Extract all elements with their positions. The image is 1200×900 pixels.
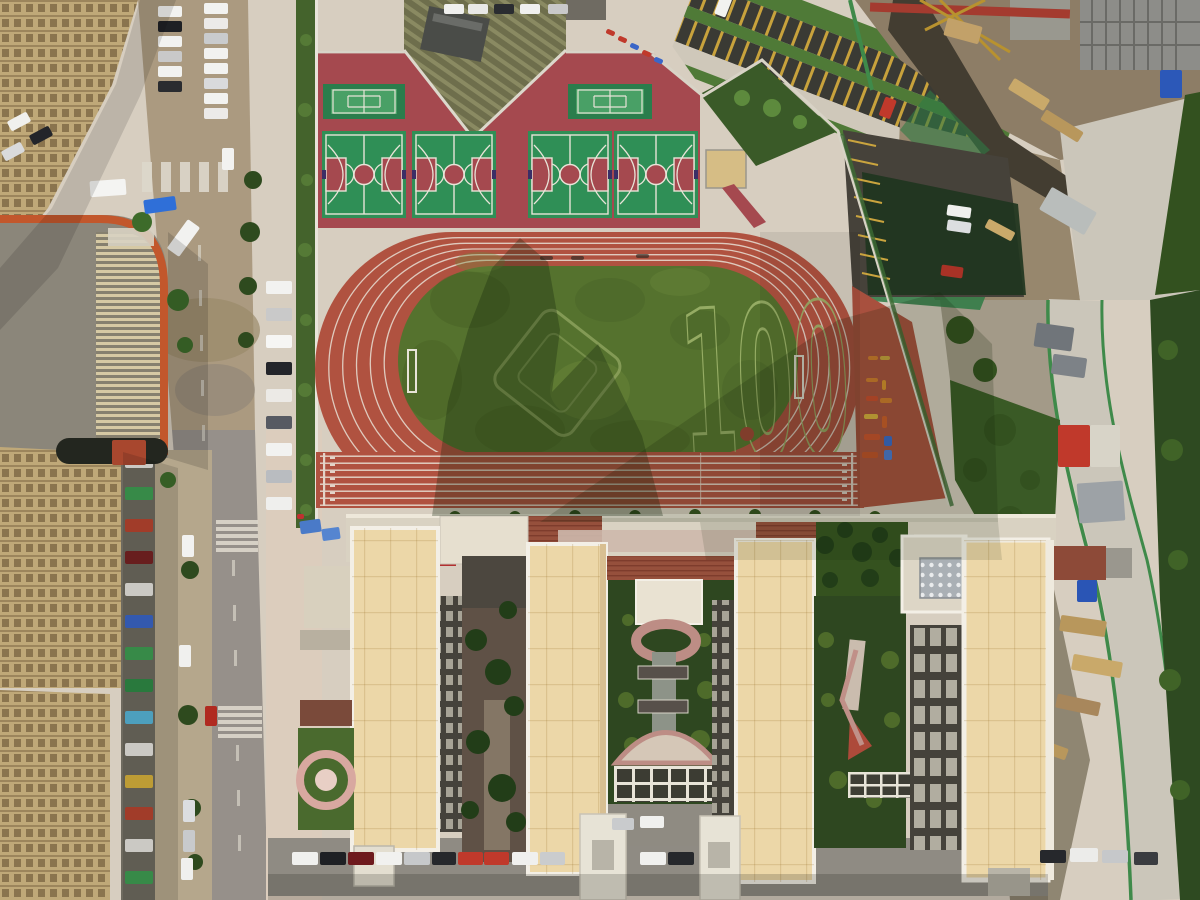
material-pile	[1077, 580, 1097, 602]
parked-car	[182, 535, 194, 557]
parked-car	[204, 78, 228, 89]
parked-car	[640, 816, 664, 828]
material-pile	[1058, 425, 1090, 467]
apartment-building-sw2	[0, 690, 110, 900]
parked-car	[494, 4, 514, 14]
market-shadow	[168, 232, 208, 470]
wall-top-right	[566, 51, 654, 53]
canopy-tent	[321, 527, 340, 541]
parked-car	[640, 852, 666, 865]
parked-car	[468, 4, 488, 14]
parked-car	[204, 18, 228, 29]
classroom-building-east	[902, 536, 1054, 896]
parked-car	[204, 108, 228, 119]
boundary-hedge-west	[296, 0, 316, 528]
basketball-court	[322, 131, 406, 218]
parked-car	[1134, 852, 1158, 865]
annex-roof-1	[304, 566, 350, 628]
south-shadow-band	[268, 874, 1048, 900]
white-pergola-grid	[614, 766, 726, 802]
parked-car	[548, 4, 568, 14]
school-buildings	[268, 514, 1132, 900]
parked-car	[1040, 850, 1066, 863]
tile-roof-3	[1048, 546, 1106, 580]
parked-car	[266, 335, 292, 348]
parked-car	[266, 416, 292, 429]
east-parapet	[1046, 540, 1054, 880]
parked-car	[222, 148, 234, 170]
parked-car	[158, 81, 182, 92]
parked-car	[183, 830, 195, 852]
parked-car	[1070, 848, 1098, 862]
basketball-court	[412, 131, 496, 218]
sw-garden	[298, 728, 354, 830]
parked-car	[612, 818, 634, 830]
parked-car	[204, 3, 228, 14]
palm-tree	[734, 90, 750, 106]
parked-car	[266, 497, 292, 510]
parked-car	[158, 51, 182, 62]
parked-car	[520, 4, 540, 14]
parked-car	[458, 852, 483, 865]
parked-car	[266, 308, 292, 321]
long-jump-pit	[706, 150, 746, 188]
parked-car	[484, 852, 509, 865]
material-pile	[1077, 480, 1126, 523]
parked-car	[204, 48, 228, 59]
parked-car	[204, 93, 228, 104]
parked-car	[348, 852, 374, 865]
skylight-grid	[920, 558, 964, 598]
pergola-1	[638, 666, 688, 679]
hurdle	[571, 256, 584, 260]
basketball-court	[614, 131, 698, 218]
parked-car	[266, 281, 292, 294]
parked-car	[404, 852, 430, 865]
parked-car	[266, 470, 292, 483]
pergola-2	[638, 700, 688, 713]
parked-car	[292, 852, 318, 865]
cars-top-lot	[444, 4, 568, 14]
parked-car	[540, 852, 565, 865]
parked-car	[432, 852, 456, 865]
parked-car	[1102, 850, 1128, 863]
parked-car	[376, 852, 402, 865]
parked-car	[183, 800, 195, 822]
parked-car	[266, 389, 292, 402]
shadow-spill	[700, 522, 1002, 560]
parked-car	[266, 443, 292, 456]
parked-car	[266, 362, 292, 375]
parked-car	[181, 858, 193, 880]
wing-annex	[1106, 548, 1132, 578]
parked-car	[444, 4, 464, 14]
parked-car	[320, 852, 346, 865]
annex-roof-2	[300, 630, 350, 650]
pergola-grid-east	[848, 772, 918, 798]
parked-car	[204, 63, 228, 74]
boundary-wall-west	[315, 0, 318, 528]
bridge-roof	[636, 580, 702, 624]
parked-car	[158, 66, 182, 77]
parked-car	[204, 33, 228, 44]
tennis-court-2	[568, 84, 652, 119]
hurdle	[636, 254, 649, 258]
annex-tile-roof	[300, 700, 352, 726]
apartment-building-sw1	[0, 447, 123, 688]
basketball-court	[528, 131, 612, 218]
parked-car	[179, 645, 191, 667]
cars-west-column	[266, 281, 292, 510]
material-pile	[1090, 425, 1120, 467]
parked-car	[512, 852, 538, 865]
palm-tree	[793, 115, 807, 129]
track-east-shade	[760, 232, 860, 516]
aerial-photo-school-campus: 100	[0, 0, 1200, 900]
parked-car	[668, 852, 694, 865]
parked-car	[205, 706, 217, 726]
tennis-court-1	[323, 84, 405, 119]
scene-canvas: 100	[0, 0, 1200, 900]
street-shadow-south	[123, 452, 178, 900]
palm-tree	[763, 99, 781, 117]
courtyard-west	[461, 556, 528, 862]
canopy-tent	[297, 514, 304, 519]
material-pile	[1160, 70, 1182, 98]
wall-top-left	[318, 51, 406, 53]
